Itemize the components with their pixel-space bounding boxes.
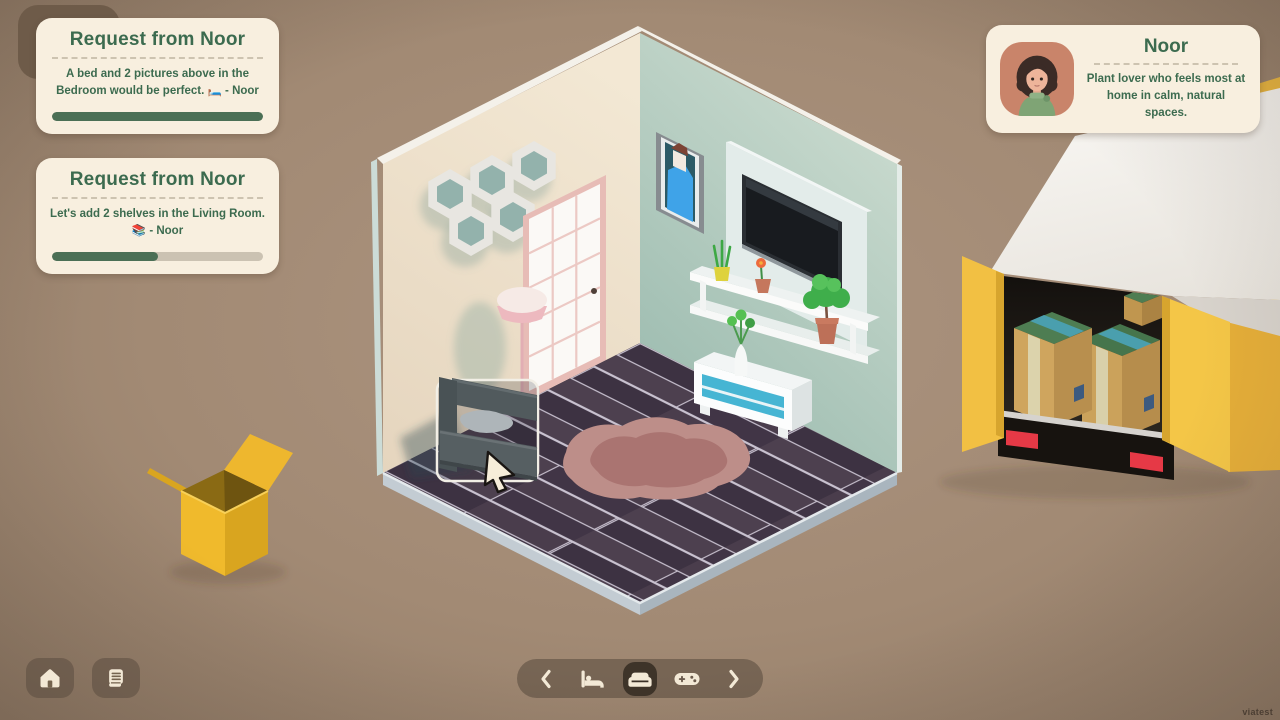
home-icon <box>38 667 62 689</box>
journal-button[interactable] <box>92 658 140 698</box>
left-wall-edge <box>371 159 383 476</box>
divider <box>1094 63 1238 65</box>
journal-icon <box>105 667 127 689</box>
tab-living-room[interactable] <box>623 662 657 696</box>
character-card: Noor Plant lover who feels most at home … <box>986 25 1260 133</box>
avatar <box>1000 42 1074 116</box>
request-title: Request from Noor <box>36 169 279 191</box>
moving-truck[interactable] <box>940 77 1280 499</box>
bed-icon <box>580 669 606 689</box>
character-name: Noor <box>1086 36 1246 58</box>
progress-track <box>52 252 263 261</box>
request-title: Request from Noor <box>36 29 279 51</box>
room-nav-bar <box>517 659 763 698</box>
next-room-button[interactable] <box>717 662 751 696</box>
progress-fill <box>52 252 158 261</box>
open-cardboard-box[interactable] <box>147 434 293 584</box>
room <box>371 26 902 615</box>
divider <box>52 197 263 199</box>
cargo-box-right[interactable] <box>1082 324 1160 438</box>
cargo-box-left[interactable] <box>1014 312 1092 426</box>
request-card-1: Request from Noor A bed and 2 pictures a… <box>36 18 279 134</box>
woman-avatar-icon <box>1000 42 1074 116</box>
box-flap-thin <box>147 468 188 494</box>
request-card-2: Request from Noor Let's add 2 shelves in… <box>36 158 279 274</box>
progress-track <box>52 112 263 121</box>
truck-door-left[interactable] <box>962 256 1004 452</box>
tab-playroom[interactable] <box>670 662 704 696</box>
watermark: viatest <box>1242 707 1273 717</box>
request-body: A bed and 2 pictures above in the Bedroo… <box>36 66 279 101</box>
divider <box>52 57 263 59</box>
request-body: Let's add 2 shelves in the Living Room. … <box>36 206 279 241</box>
tab-bedroom[interactable] <box>576 662 610 696</box>
progress-fill <box>52 112 263 121</box>
character-description: Plant lover who feels most at home in ca… <box>1086 71 1246 123</box>
chevron-left-icon <box>537 669 555 689</box>
couch-icon <box>628 669 652 689</box>
prev-room-button[interactable] <box>529 662 563 696</box>
truck-shadow <box>940 465 1250 499</box>
home-button[interactable] <box>26 658 74 698</box>
controller-icon <box>674 671 700 687</box>
chevron-right-icon <box>725 669 743 689</box>
door-handle <box>591 288 597 294</box>
